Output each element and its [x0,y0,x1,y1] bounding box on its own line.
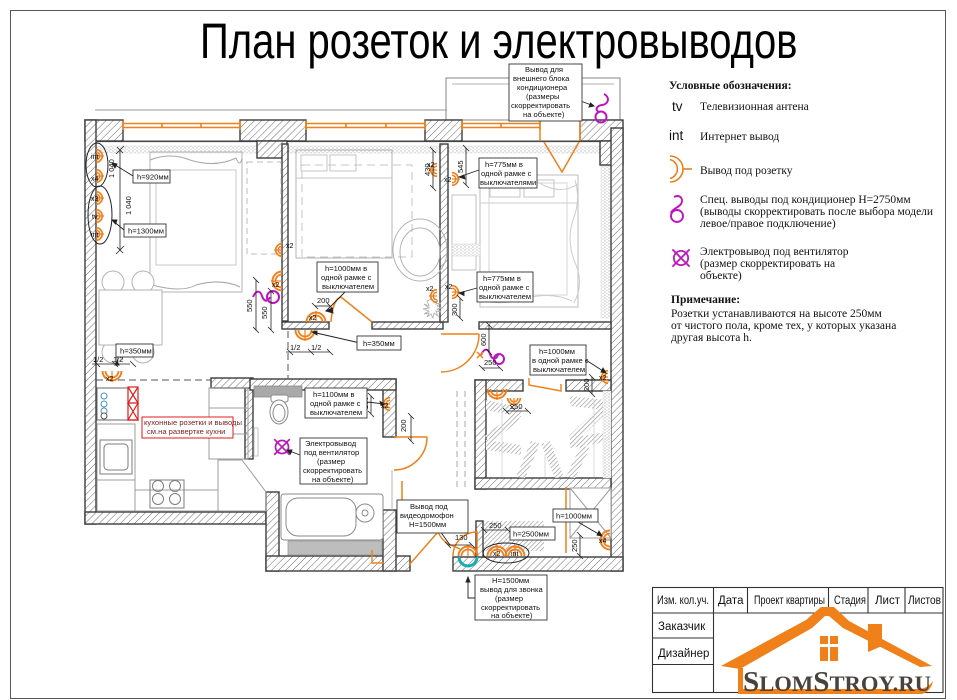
svg-text:Стадия: Стадия [834,595,866,607]
svg-text:int: int [511,551,518,558]
svg-text:x2: x2 [286,243,294,250]
svg-text:другая высота h.: другая высота h. [671,332,752,344]
svg-text:x2: x2 [426,286,434,293]
svg-text:x2: x2 [309,315,317,322]
svg-text:Изм. кол.уч.: Изм. кол.уч. [657,595,709,607]
svg-text:на объекте): на объекте) [312,475,354,484]
svg-text:на объекте): на объекте) [491,611,533,620]
svg-text:Лист: Лист [875,595,901,607]
svg-text:1 040: 1 040 [124,196,133,215]
svg-text:выключателем: выключателем [533,365,585,374]
svg-text:Дизайнер: Дизайнер [658,648,709,660]
svg-text:одной рамке с: одной рамке с [321,273,372,282]
svg-text:(размер скорректировать на: (размер скорректировать на [700,258,835,270]
svg-text:Розетки устанавливаются на выс: Розетки устанавливаются на высоте 250мм [671,308,882,320]
svg-text:левое/правое подключение): левое/правое подключение) [700,218,836,230]
svg-text:h=350мм: h=350мм [363,339,395,348]
svg-text:внешнего блока: внешнего блока [513,74,570,83]
svg-text:одной рамке с: одной рамке с [479,283,530,292]
svg-text:Условные обозначения:: Условные обозначения: [669,80,792,92]
svg-text:Н=1500мм: Н=1500мм [409,520,446,529]
svg-text:130: 130 [455,533,468,542]
svg-text:под вентилятор: под вентилятор [304,448,359,457]
svg-text:250: 250 [510,402,523,411]
svg-text:одной рамке с: одной рамке с [310,399,361,408]
svg-text:h=350мм: h=350мм [120,347,152,356]
svg-text:кухонные розетки и выводы: кухонные розетки и выводы [144,418,242,427]
svg-text:200: 200 [582,378,591,391]
svg-text:250: 250 [484,358,497,367]
svg-text:x3: x3 [91,196,99,203]
svg-text:545: 545 [456,160,465,173]
svg-text:430: 430 [423,163,432,176]
svg-text:Проект квартиры: Проект квартиры [754,595,825,607]
svg-text:600: 600 [479,333,488,346]
svg-text:x4: x4 [599,538,607,545]
svg-text:1/2: 1/2 [93,355,103,364]
svg-text:1/2: 1/2 [290,343,300,352]
svg-text:Листов: Листов [908,595,941,607]
svg-text:250: 250 [489,521,502,530]
svg-text:x4: x4 [91,176,99,183]
svg-text:вывод для звонка: вывод для звонка [480,585,543,594]
svg-text:H=1500мм: H=1500мм [492,576,529,585]
svg-text:x2: x2 [272,282,280,289]
svg-text:h=1300мм: h=1300мм [128,227,164,236]
svg-text:h=1000мм: h=1000мм [539,347,575,356]
svg-text:550: 550 [260,306,269,319]
svg-text:h=1000мм: h=1000мм [556,512,592,521]
svg-text:скорректировать: скорректировать [511,101,570,110]
svg-text:Электровывод под вентилятор: Электровывод под вентилятор [700,246,849,258]
svg-text:одной рамке с: одной рамке с [481,169,532,178]
svg-text:x2: x2 [445,284,453,291]
svg-text:в одной рамке с: в одной рамке с [532,356,589,365]
svg-text:(размеры: (размеры [526,92,560,101]
svg-text:Заказчик: Заказчик [658,621,706,633]
svg-text:Электровывод: Электровывод [305,439,357,448]
svg-text:Дата: Дата [718,595,744,607]
svg-text:выключателями: выключателями [480,178,536,187]
svg-text:h=775мм в: h=775мм в [485,160,523,169]
svg-text:Телевизионная антена: Телевизионная антена [700,101,809,113]
svg-text:int: int [91,232,98,239]
svg-text:h=1100мм в: h=1100мм в [313,390,355,399]
svg-text:на объекте): на объекте) [523,110,565,119]
svg-text:200: 200 [317,296,330,305]
svg-text:(выводы скорректировать после: (выводы скорректировать после выбора мод… [700,206,933,218]
svg-text:см.на развертке кухни: см.на развертке кухни [147,427,225,436]
svg-text:200: 200 [399,419,408,432]
svg-text:int: int [669,128,684,143]
svg-text:(размер: (размер [317,457,345,466]
svg-text:h=920мм: h=920мм [137,173,169,182]
svg-text:h=775мм в: h=775мм в [483,274,521,283]
svg-text:SLOMSTROY.RU: SLOMSTROY.RU [743,666,931,698]
svg-text:кондиционера: кондиционера [517,83,568,92]
svg-text:h=1000мм в: h=1000мм в [325,264,367,273]
svg-text:Спец. выводы под кондиционер Н: Спец. выводы под кондиционер Н=2750мм [700,194,911,206]
svg-text:int: int [91,154,98,161]
svg-text:объекте): объекте) [700,270,742,282]
svg-text:видеодомофон: видеодомофон [400,511,454,520]
svg-text:x2: x2 [599,375,607,382]
svg-text:Примечание:: Примечание: [671,294,740,306]
svg-text:tv: tv [672,99,683,114]
svg-text:Вывод под розетку: Вывод под розетку [700,165,793,177]
svg-text:x2: x2 [106,376,114,383]
svg-text:h=2500мм: h=2500мм [513,530,549,539]
svg-text:скорректировать: скорректировать [303,466,362,475]
svg-text:выключателем: выключателем [310,408,362,417]
svg-text:1 040: 1 040 [107,159,116,178]
svg-text:x2: x2 [493,551,501,558]
svg-text:550: 550 [245,299,254,312]
svg-text:от чистого пола, кроме тех, у: от чистого пола, кроме тех, у которых ук… [671,320,896,332]
svg-text:x2: x2 [444,177,452,184]
svg-text:Вывод для: Вывод для [525,65,563,74]
svg-text:300: 300 [450,303,459,316]
svg-text:Вывод под: Вывод под [410,502,448,511]
svg-text:tv.: tv. [92,214,99,221]
svg-text:Интернет вывод: Интернет вывод [700,131,779,143]
svg-text:(размер: (размер [495,594,523,603]
svg-text:1/2: 1/2 [311,343,321,352]
svg-text:250: 250 [570,539,579,552]
svg-text:выключателем: выключателем [479,292,531,301]
svg-text:выключателем: выключателем [322,282,374,291]
